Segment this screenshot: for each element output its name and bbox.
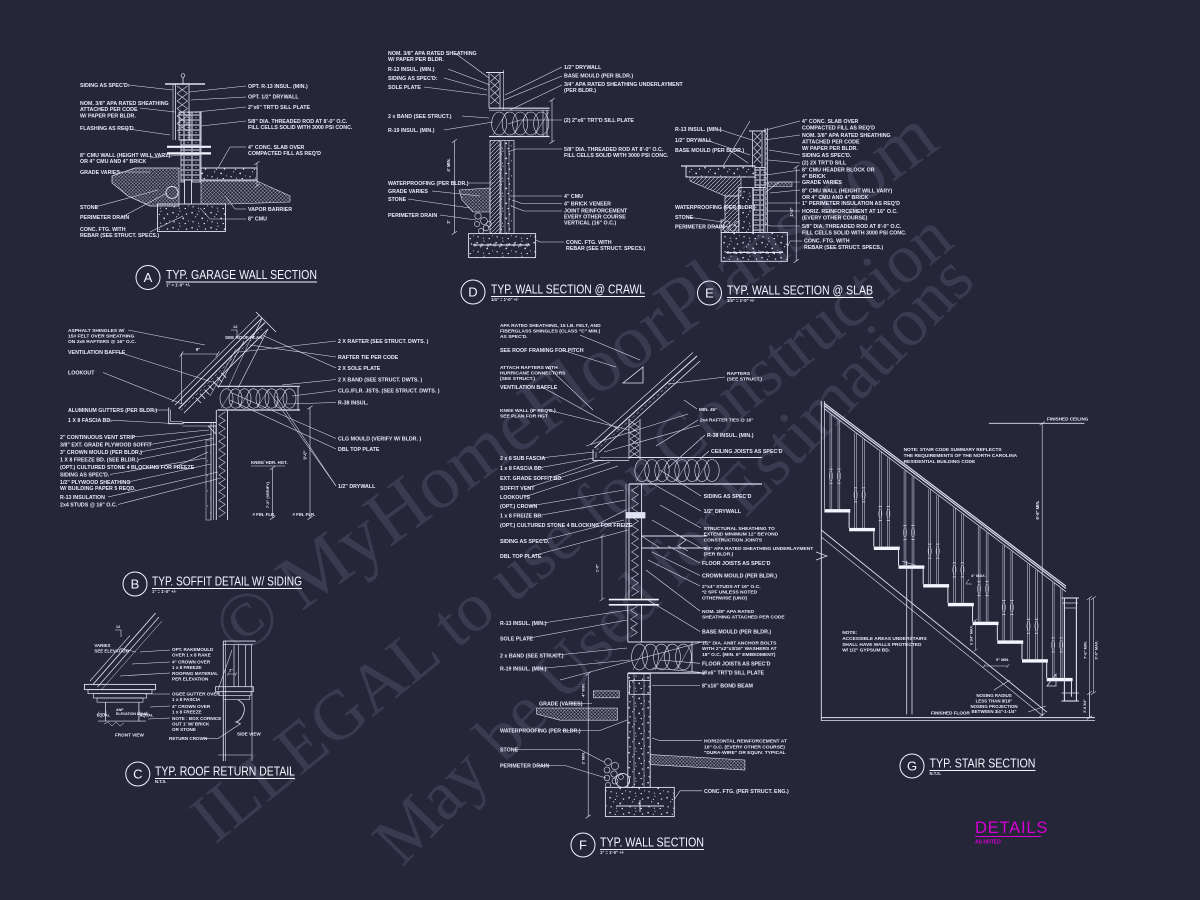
svg-text:ELEVATION EQUAL: ELEVATION EQUAL (116, 712, 150, 716)
svg-text:2"x6" TRT'D SILL PLATE: 2"x6" TRT'D SILL PLATE (248, 105, 310, 111)
svg-text:C: C (133, 767, 142, 782)
svg-text:FRONT VIEW: FRONT VIEW (115, 733, 145, 738)
svg-text:6 1/4" MAX.: 6 1/4" MAX. (970, 625, 974, 645)
svg-text:1" = 1'-0" +/-: 1" = 1'-0" +/- (166, 283, 191, 288)
svg-text:3/4" APA RATED SHEATHING UNDER: 3/4" APA RATED SHEATHING UNDERLAYMENT (704, 546, 814, 552)
svg-text:2 x 6 SUB FASCIA: 2 x 6 SUB FASCIA (500, 456, 546, 462)
svg-text:NOTE:: NOTE: (842, 630, 857, 636)
svg-text:TYP. ROOF RETURN DETAIL: TYP. ROOF RETURN DETAIL (155, 764, 295, 779)
svg-text:4" CMU: 4" CMU (564, 194, 583, 200)
svg-text:2 x BAND (SEE STRUCT.): 2 x BAND (SEE STRUCT.) (500, 654, 564, 660)
svg-text:W/ PAPER PER BLDR.: W/ PAPER PER BLDR. (802, 146, 858, 152)
svg-text:SOLE PLATE: SOLE PLATE (388, 85, 421, 91)
svg-text:A: A (144, 270, 153, 285)
svg-text:(SEE STRUCT.): (SEE STRUCT.) (727, 377, 762, 383)
svg-text:4" MAX.: 4" MAX. (971, 573, 986, 578)
svg-text:VENTILATION BAFFLE: VENTILATION BAFFLE (500, 385, 558, 391)
svg-text:R-19 INSUL. (MIN.): R-19 INSUL. (MIN.) (500, 667, 547, 673)
svg-text:R-13 INSUL. (MIN.): R-13 INSUL. (MIN.) (388, 67, 435, 73)
svg-text:FILL CELLS SOLID WITH 3000 PSI: FILL CELLS SOLID WITH 3000 PSI CONC. (564, 153, 669, 159)
svg-text:4" CONC. SLAB OVER: 4" CONC. SLAB OVER (802, 119, 859, 125)
svg-text:MIN. 45°: MIN. 45° (699, 407, 717, 412)
svg-text:EXTEND MINIMUM 12" BEYOND: EXTEND MINIMUM 12" BEYOND (704, 532, 779, 538)
svg-text:W/ PAPER PER BLDR.: W/ PAPER PER BLDR. (80, 113, 136, 119)
svg-text:KNEE/ HDR. HGT.: KNEE/ HDR. HGT. (251, 460, 288, 465)
svg-text:OR STONE: OR STONE (172, 727, 196, 732)
svg-text:VARIES: VARIES (94, 643, 110, 648)
svg-text:B: B (131, 577, 140, 592)
svg-text:PERIMETER DRAIN: PERIMETER DRAIN (80, 215, 129, 221)
svg-text:ACCESSIBLE AREAS UNDERSTAIRS: ACCESSIBLE AREAS UNDERSTAIRS (842, 636, 927, 642)
svg-text:7'-6" (VERIFY): 7'-6" (VERIFY) (265, 481, 270, 508)
svg-text:1 x 8 FREEZE: 1 x 8 FREEZE (172, 710, 202, 715)
svg-text:4" CROWN OVER: 4" CROWN OVER (172, 660, 211, 665)
svg-text:CROWN MOULD (PER BLDR.): CROWN MOULD (PER BLDR.) (702, 574, 777, 580)
svg-text:PERIMETER DRAIN: PERIMETER DRAIN (388, 213, 437, 219)
svg-text:2": 2" (229, 669, 233, 673)
svg-text:CLG MOULD (VERIFY W/ BLDR. ): CLG MOULD (VERIFY W/ BLDR. ) (338, 437, 421, 443)
svg-text:1'-4": 1'-4" (789, 207, 794, 216)
svg-text:OPT. 1/2" DRYWALL: OPT. 1/2" DRYWALL (248, 95, 299, 101)
svg-text:DBL TOP PLATE: DBL TOP PLATE (338, 447, 380, 453)
svg-text:N.T.S.: N.T.S. (155, 779, 166, 784)
svg-text:TYP. SOFFIT DETAIL W/ SIDING: TYP. SOFFIT DETAIL W/ SIDING (152, 574, 302, 589)
svg-text:SIDE VIEW: SIDE VIEW (237, 732, 261, 737)
svg-text:STONE: STONE (500, 748, 519, 754)
svg-text:12: 12 (116, 625, 120, 629)
svg-text:*2 SPF UNLESS NOTED: *2 SPF UNLESS NOTED (702, 590, 758, 596)
svg-text:LOOKOUTS: LOOKOUTS (500, 495, 530, 501)
svg-text:NOTE : BOX CORNICE: NOTE : BOX CORNICE (172, 716, 221, 721)
svg-text:STONE: STONE (675, 215, 694, 221)
svg-text:SHALL HAVE WALLS PROTECTED: SHALL HAVE WALLS PROTECTED (842, 642, 922, 648)
svg-text:1 x 8 FREIZE BD.: 1 x 8 FREIZE BD. (500, 514, 543, 520)
svg-text:PER ELEVATION: PER ELEVATION (172, 677, 209, 682)
svg-text:9'-0": 9'-0" (303, 450, 308, 459)
svg-text:8" CMU: 8" CMU (248, 217, 267, 223)
svg-text:(2) 2"x6" TRT'D SILL PLATE: (2) 2"x6" TRT'D SILL PLATE (564, 118, 634, 124)
svg-text:OTHERWISE (UNO): OTHERWISE (UNO) (702, 595, 747, 601)
svg-text:3/8" EXT. GRADE PLYWOOD SOFFIT: 3/8" EXT. GRADE PLYWOOD SOFFIT (60, 443, 153, 449)
svg-text:8" CMU WALL (HEIGHT WILL VARY): 8" CMU WALL (HEIGHT WILL VARY) (80, 153, 171, 159)
svg-text:1/4" = 1'-0" +/-: 1/4" = 1'-0" +/- (727, 298, 755, 303)
svg-text:HURRICANE CONNECTORS: HURRICANE CONNECTORS (500, 371, 566, 377)
svg-text:GRADE VARIES: GRADE VARIES (388, 189, 428, 195)
svg-text:GRADE VARIES: GRADE VARIES (80, 170, 120, 176)
svg-text:CONSTRUCTION JOINTS: CONSTRUCTION JOINTS (704, 537, 763, 543)
svg-text:TYP. GARAGE WALL SECTION: TYP. GARAGE WALL SECTION (166, 267, 317, 282)
svg-text:TYP. WALL SECTION @ CRAWL: TYP. WALL SECTION @ CRAWL (491, 282, 645, 297)
svg-text:W/ PAPER PER BLDR.: W/ PAPER PER BLDR. (388, 57, 444, 63)
svg-text:8" CMU HEADER BLOCK OR: 8" CMU HEADER BLOCK OR (802, 168, 875, 174)
svg-text:(SEE STRUCT.): (SEE STRUCT.) (500, 376, 535, 382)
svg-text:NOM. 3/8" APA RATED SHEATHING: NOM. 3/8" APA RATED SHEATHING (80, 101, 169, 107)
svg-text:(OPT.) CROWN: (OPT.) CROWN (500, 504, 538, 510)
svg-text:N.T.S.: N.T.S. (930, 771, 941, 776)
svg-text:BETWEEN 3/4"-1-1/4": BETWEEN 3/4"-1-1/4" (972, 709, 1017, 714)
svg-text:3" CROWN MOULD (PER BLDR.): 3" CROWN MOULD (PER BLDR.) (60, 450, 142, 456)
svg-text:2x4 RAFTER TIES @ 16": 2x4 RAFTER TIES @ 16" (700, 418, 753, 423)
svg-text:1 x 8 FASCIA BD.: 1 x 8 FASCIA BD. (500, 466, 544, 472)
svg-text:8"x16" BOND BEAM: 8"x16" BOND BEAM (702, 683, 754, 689)
svg-text:WATERPROOFING (PER BLDR.): WATERPROOFING (PER BLDR.) (500, 729, 581, 735)
svg-text:F: F (579, 838, 587, 853)
svg-text:SIDING AS SPEC'D:: SIDING AS SPEC'D: (80, 83, 130, 89)
svg-text:NOSING RADIUS: NOSING RADIUS (976, 693, 1011, 698)
svg-text:ON 2x6 RAFTERS @ 16" O.C.: ON 2x6 RAFTERS @ 16" O.C. (68, 339, 137, 345)
svg-text:SIDING AS SPEC'D.: SIDING AS SPEC'D. (500, 539, 550, 545)
svg-text:SEE PLAN FOR HGT: SEE PLAN FOR HGT (500, 414, 548, 420)
svg-text:1/2" DRYWALL: 1/2" DRYWALL (564, 65, 602, 71)
svg-text:G: G (907, 759, 917, 774)
svg-text:SIDING AS SPEC'D.: SIDING AS SPEC'D. (60, 473, 110, 479)
svg-text:SEE ROOF PLAN: SEE ROOF PLAN (225, 335, 263, 340)
svg-text:# FIN. FLR.: # FIN. FLR. (293, 512, 316, 517)
svg-text:15# FELT OVER SHEATHING: 15# FELT OVER SHEATHING (68, 334, 135, 340)
svg-text:SHEATHING ATTACHED PER CODE: SHEATHING ATTACHED PER CODE (702, 615, 785, 621)
svg-text:AS NOTED: AS NOTED (975, 840, 1001, 846)
svg-text:NOM. 3/8" APA RATED SHEATHING: NOM. 3/8" APA RATED SHEATHING (388, 51, 477, 57)
svg-text:5/8" DIA. THREADED ROD AT 8'-0: 5/8" DIA. THREADED ROD AT 8'-0" O.C. (248, 119, 348, 125)
svg-text:2"x6" TRT'D SILL PLATE: 2"x6" TRT'D SILL PLATE (702, 670, 764, 676)
svg-text:2 X BAND (SEE STRUCT. DWTS. ): 2 X BAND (SEE STRUCT. DWTS. ) (338, 378, 422, 384)
svg-text:STRUCTURAL SHEATHING TO: STRUCTURAL SHEATHING TO (704, 526, 775, 532)
svg-text:EVERY OTHER COURSE: EVERY OTHER COURSE (564, 215, 626, 221)
svg-text:E: E (705, 286, 714, 301)
svg-text:2"x4" STUDS AT 16" O.C.: 2"x4" STUDS AT 16" O.C. (702, 584, 761, 590)
svg-text:OR 4" CMU AND 4" BRICK: OR 4" CMU AND 4" BRICK (802, 195, 869, 201)
svg-text:R-13 INSUL. (MIN.): R-13 INSUL. (MIN.) (500, 621, 547, 627)
svg-text:2 X RAFTER (SEE STRUCT. DWTS.: 2 X RAFTER (SEE STRUCT. DWTS. ) (338, 339, 429, 345)
svg-text:NOTE: STAIR CODE SUMMARY REFLE: NOTE: STAIR CODE SUMMARY REFLECTS (904, 447, 1003, 453)
svg-text:BASE MOULD (PER BLDR.): BASE MOULD (PER BLDR.) (564, 74, 633, 80)
svg-text:RAFTERS: RAFTERS (727, 371, 751, 377)
svg-text:THE REQUIREMENTS OF THE NORTH: THE REQUIREMENTS OF THE NORTH CAROLINA (904, 453, 1018, 459)
svg-text:WITH 2"x2"x3/16" WASHERS AT: WITH 2"x2"x3/16" WASHERS AT (702, 646, 777, 652)
svg-text:TYP. STAIR SECTION: TYP. STAIR SECTION (930, 756, 1036, 771)
svg-text:R-13 INSULATION: R-13 INSULATION (60, 495, 105, 501)
svg-text:HORIZ. REINFORCEMENT AT 16" O.: HORIZ. REINFORCEMENT AT 16" O.C. (802, 209, 898, 215)
svg-text:SIDING AS SPEC'D.: SIDING AS SPEC'D. (802, 153, 852, 159)
svg-text:7'-6" MIN.: 7'-6" MIN. (1083, 641, 1088, 659)
svg-text:COMPACTED FILL AS REQ'D: COMPACTED FILL AS REQ'D (802, 125, 875, 131)
svg-text:D: D (468, 285, 477, 300)
svg-text:12: 12 (233, 324, 238, 329)
svg-text:9" MIN.: 9" MIN. (996, 657, 1009, 662)
svg-text:2" CONTINUOUS VENT STRIP: 2" CONTINUOUS VENT STRIP (60, 435, 136, 441)
svg-text:1 X 8 FASCIA BD.: 1 X 8 FASCIA BD. (68, 418, 112, 424)
svg-text:REBAR (SEE STRUCT. SPECS.): REBAR (SEE STRUCT. SPECS.) (566, 246, 645, 252)
svg-text:R-38 INSUL.: R-38 INSUL. (338, 401, 369, 407)
svg-text:16" O.C. (EVERY OTHER COURSE): 16" O.C. (EVERY OTHER COURSE) (704, 744, 785, 750)
svg-text:CONC. FTG. (PER STRUCT. ENG.): CONC. FTG. (PER STRUCT. ENG.) (704, 789, 789, 795)
svg-text:5/8" DIA. THREADED ROD AT 8'-0: 5/8" DIA. THREADED ROD AT 8'-0" O.C. (802, 224, 902, 230)
svg-text:GRADE (VARIES): GRADE (VARIES) (539, 702, 583, 708)
svg-text:PERIMETER DRAIN: PERIMETER DRAIN (500, 764, 549, 770)
svg-text:8" CMU WALL (HEIGHT WILL VARY): 8" CMU WALL (HEIGHT WILL VARY) (802, 189, 893, 195)
svg-text:LESS THAN 9/16": LESS THAN 9/16" (976, 698, 1013, 703)
svg-text:1/2" DIA. AN8T ANCHOR BOLTS: 1/2" DIA. AN8T ANCHOR BOLTS (702, 641, 777, 647)
svg-text:1/2" DRYWALL: 1/2" DRYWALL (675, 138, 713, 144)
svg-text:OGEE GUTTER OVER: OGEE GUTTER OVER (172, 692, 220, 697)
svg-text:3/4" APA RATED SHEATHING UNDER: 3/4" APA RATED SHEATHING UNDERLAYMENT (564, 82, 684, 88)
svg-text:18" O.C. (MIN. 6" EMBEDMENT): 18" O.C. (MIN. 6" EMBEDMENT) (702, 652, 776, 658)
svg-text:SIDING AS SPEC'D:: SIDING AS SPEC'D: (388, 76, 438, 82)
svg-text:(OPT.) CULTURED STONE 4 BLOCKI: (OPT.) CULTURED STONE 4 BLOCKING FOR FRE… (500, 523, 633, 529)
svg-text:EQUAL: EQUAL (97, 714, 111, 718)
svg-text:FINISHED CEILING: FINISHED CEILING (1047, 417, 1089, 422)
svg-text:4" CROWN OVER: 4" CROWN OVER (172, 704, 211, 709)
svg-text:5/8" DIA. THREADED ROD AT 8'-0: 5/8" DIA. THREADED ROD AT 8'-0" O.C. (564, 147, 664, 153)
svg-text:FILL CELLS SOLID WITH 3000 PSI: FILL CELLS SOLID WITH 3000 PSI CONC. (248, 125, 353, 131)
svg-text:(PER BLDR.): (PER BLDR.) (564, 88, 596, 94)
svg-text:4" BRICK: 4" BRICK (802, 174, 826, 180)
svg-text:REBAR (SEE STRUCT. SPECS.): REBAR (SEE STRUCT. SPECS.) (80, 233, 159, 239)
svg-text:4' MIN.: 4' MIN. (446, 158, 451, 171)
svg-text:R-19 INSUL. (MIN.): R-19 INSUL. (MIN.) (388, 128, 435, 134)
svg-text:6'-8" MIN.: 6'-8" MIN. (1035, 500, 1040, 519)
svg-text:R-13 INSUL. (MIN.): R-13 INSUL. (MIN.) (675, 127, 722, 133)
svg-text:RAFTER TIE PER CODE: RAFTER TIE PER CODE (338, 355, 399, 361)
svg-text:2' MIN.: 2' MIN. (581, 752, 586, 765)
svg-text:(OPT.) CULTURED STONE 4 BLOCKI: (OPT.) CULTURED STONE 4 BLOCKING FOR FRE… (60, 465, 195, 471)
svg-text:FLASHING AS REQ'D: FLASHING AS REQ'D (80, 126, 134, 132)
svg-text:RESIDENTIAL BUILDING CODE: RESIDENTIAL BUILDING CODE (904, 459, 976, 465)
svg-text:4" BRICK VENEER: 4" BRICK VENEER (564, 202, 611, 208)
svg-text:(2) 2X TRT'D SILL: (2) 2X TRT'D SILL (802, 161, 847, 167)
svg-text:CONC. FTG. WITH: CONC. FTG. WITH (804, 239, 850, 245)
svg-text:SOLE PLATE: SOLE PLATE (500, 637, 533, 643)
svg-text:COMPACTED FILL AS REQ'D: COMPACTED FILL AS REQ'D (248, 151, 321, 157)
svg-text:W/ 1/2" GYPSUM BD.: W/ 1/2" GYPSUM BD. (842, 648, 890, 654)
svg-text:REBAR (SEE STRUCT. SPECS.): REBAR (SEE STRUCT. SPECS.) (804, 245, 883, 251)
svg-text:DETAILS: DETAILS (975, 819, 1048, 837)
svg-text:FINISHED FLOOR: FINISHED FLOOR (931, 711, 970, 716)
svg-text:OPT. RAKEMOULD: OPT. RAKEMOULD (172, 647, 214, 652)
svg-text:RETURN CROWN: RETURN CROWN (169, 736, 208, 741)
svg-text:1'-0": 1'-0" (596, 564, 600, 572)
svg-text:HORIZONTAL REINFORCEMENT AT: HORIZONTAL REINFORCEMENT AT (704, 739, 787, 745)
svg-text:CONC. FTG. WITH: CONC. FTG. WITH (80, 227, 126, 233)
svg-text:FIBERGLASS SHINGLES (CLASS "C": FIBERGLASS SHINGLES (CLASS "C" MIN.) (500, 329, 601, 335)
svg-text:1" = 1'-0" +/-: 1" = 1'-0" +/- (600, 850, 625, 855)
svg-text:# FIN. FLR.: # FIN. FLR. (253, 512, 276, 517)
svg-text:CEILING JOISTS AS SPEC'D: CEILING JOISTS AS SPEC'D (711, 449, 783, 455)
svg-text:KNEE WALL (IF REQ'D.): KNEE WALL (IF REQ'D.) (500, 408, 556, 414)
svg-text:ROOFING MATERIAL: ROOFING MATERIAL (172, 671, 218, 676)
svg-text:TYP. WALL SECTION @ SLAB: TYP. WALL SECTION @ SLAB (727, 283, 873, 298)
svg-text:1" PERIMETER INSULATION AS REQ: 1" PERIMETER INSULATION AS REQ'D (802, 201, 900, 207)
svg-text:1 x 8 FREEZE: 1 x 8 FREEZE (172, 665, 202, 670)
svg-text:1/4" = 1'-0" +/-: 1/4" = 1'-0" +/- (491, 297, 519, 302)
svg-text:9": 9" (196, 347, 201, 352)
svg-text:2x4 STUDS @ 16" O.C.: 2x4 STUDS @ 16" O.C. (60, 503, 118, 509)
svg-text:PERIMETER DRAIN: PERIMETER DRAIN (675, 225, 724, 231)
svg-text:2 X SOLE PLATE: 2 X SOLE PLATE (338, 366, 381, 372)
svg-text:OUT 1' W/ BRICK: OUT 1' W/ BRICK (172, 722, 210, 727)
svg-text:(EVERY OTHER COURSE): (EVERY OTHER COURSE) (802, 215, 868, 221)
svg-text:CONC. FTG. WITH: CONC. FTG. WITH (566, 240, 612, 246)
svg-text:APA RATED SHEATHING, 15 LB. FE: APA RATED SHEATHING, 15 LB. FELT, AND (500, 323, 601, 329)
svg-text:NOM. 3/8" APA RATED SHEATHING: NOM. 3/8" APA RATED SHEATHING (802, 133, 891, 139)
svg-text:NOSING PROJECTION: NOSING PROJECTION (970, 704, 1017, 709)
svg-text:4" MIN.: 4" MIN. (581, 683, 586, 697)
svg-text:LOOKOUT: LOOKOUT (68, 371, 95, 377)
svg-text:FLOOR JOISTS AS SPEC'D: FLOOR JOISTS AS SPEC'D (702, 561, 771, 567)
svg-text:4" CONC. SLAB OVER: 4" CONC. SLAB OVER (248, 145, 305, 151)
svg-text:GRADE VARIES: GRADE VARIES (802, 180, 842, 186)
svg-text:R-38 INSUL. (MIN.): R-38 INSUL. (MIN.) (707, 433, 754, 439)
svg-text:AS SPEC'D.: AS SPEC'D. (500, 334, 528, 340)
svg-text:1/2" DRYWALL: 1/2" DRYWALL (704, 509, 742, 515)
svg-text:BASE MOULD (PER BLDR.): BASE MOULD (PER BLDR.) (702, 630, 771, 636)
svg-text:FLOOR JOISTS AS SPEC'D: FLOOR JOISTS AS SPEC'D (702, 661, 771, 667)
svg-text:1/2" DRYWALL: 1/2" DRYWALL (338, 484, 376, 490)
svg-text:3'-0" MAX.: 3'-0" MAX. (1094, 640, 1099, 659)
svg-text:VERTICAL (16" O.C.): VERTICAL (16" O.C.) (564, 221, 616, 227)
svg-text:ASPHALT SHINGLES W/: ASPHALT SHINGLES W/ (68, 328, 125, 334)
svg-text:WATERPROOFING (PER BLDR.): WATERPROOFING (PER BLDR.) (675, 205, 756, 211)
svg-text:ATTACHED PER CODE: ATTACHED PER CODE (80, 107, 138, 113)
svg-text:OVER 1 x 8 RAKE: OVER 1 x 8 RAKE (172, 653, 211, 658)
svg-text:VENTILATION BAFFLE: VENTILATION BAFFLE (68, 350, 126, 356)
svg-text:1 x 8 FASCIA: 1 x 8 FASCIA (172, 697, 201, 702)
svg-text:2'-8 3/4": 2'-8 3/4" (1083, 699, 1087, 713)
svg-text:CLG./FLR. JSTS. (SEE STRUCT. D: CLG./FLR. JSTS. (SEE STRUCT. DWTS. ) (338, 389, 440, 395)
svg-text:1" = 1'-0" +/-: 1" = 1'-0" +/- (152, 589, 177, 594)
svg-text:OPT. R-13 INSUL. (MIN.): OPT. R-13 INSUL. (MIN.) (248, 84, 308, 90)
svg-text:VAPOR BARRIER: VAPOR BARRIER (248, 207, 292, 213)
svg-text:OR 4" CMU AND 4" BRICK: OR 4" CMU AND 4" BRICK (80, 159, 147, 165)
svg-text:W/ BUILDING PAPER 5 REQD.: W/ BUILDING PAPER 5 REQD. (60, 486, 136, 492)
svg-text:FILL CELLS SOLID WITH 3000 PSI: FILL CELLS SOLID WITH 3000 PSI CONC. (802, 230, 907, 236)
svg-text:(PER BLDR.): (PER BLDR.) (704, 552, 734, 558)
svg-text:STONE: STONE (388, 197, 407, 203)
svg-text:SIDING AS SPEC'D: SIDING AS SPEC'D (704, 494, 752, 500)
svg-text:NOM. 3/8" APA RATED: NOM. 3/8" APA RATED (702, 609, 755, 615)
svg-text:"DURA-WIRE" OR EQUIV. TYPICAL: "DURA-WIRE" OR EQUIV. TYPICAL (704, 750, 786, 756)
svg-text:WATERPROOFING (PER BLDR.): WATERPROOFING (PER BLDR.) (388, 181, 469, 187)
svg-text:JOINT REINFORCEMENT: JOINT REINFORCEMENT (564, 209, 628, 215)
svg-text:TYP. WALL SECTION: TYP. WALL SECTION (600, 835, 704, 850)
svg-text:ATTACHED PER CODE: ATTACHED PER CODE (802, 139, 860, 145)
svg-text:1/2" PLYWOOD SHEATHING: 1/2" PLYWOOD SHEATHING (60, 480, 131, 486)
svg-text:STONE: STONE (80, 205, 99, 211)
svg-text:2 x BAND (SEE STRUCT.): 2 x BAND (SEE STRUCT.) (388, 114, 452, 120)
svg-text:1 X 8 FREEZE BD. (SEE BLDR.): 1 X 8 FREEZE BD. (SEE BLDR.) (60, 458, 139, 464)
svg-text:2': 2' (446, 220, 451, 223)
svg-text:ALUMINUM GUTTERS (PER BLDR.): ALUMINUM GUTTERS (PER BLDR.) (68, 408, 157, 414)
